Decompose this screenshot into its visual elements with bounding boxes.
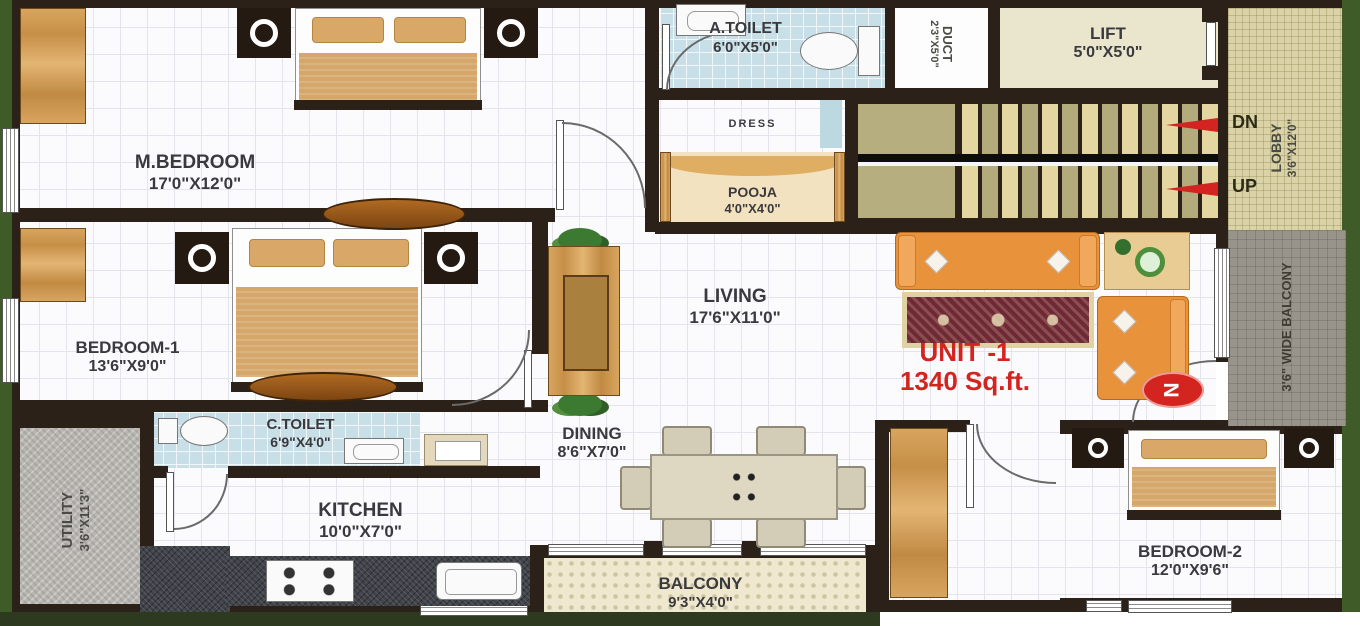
wardrobe: [20, 228, 86, 302]
kitchen-label: KITCHEN10'0"X7'0": [248, 500, 473, 542]
bed-foot: [1127, 510, 1281, 520]
dress-label: DRESS: [660, 118, 845, 131]
dining-chair: [662, 518, 712, 548]
sink: [436, 562, 522, 600]
nightstand: [1284, 428, 1334, 468]
balcony-label: BALCONY9'3"X4'0": [588, 574, 813, 612]
nightstand: [1072, 428, 1124, 468]
door-leaf: [524, 350, 532, 408]
balcony-post: [644, 541, 662, 558]
vanity-cabinet: [424, 434, 488, 466]
tv-console-inner: [563, 275, 609, 371]
plant-table: [1104, 232, 1190, 290]
stairs-down-label: DN: [1232, 112, 1258, 133]
kitchen-counter-corner: [140, 546, 230, 612]
wall: [12, 400, 420, 412]
wall: [532, 222, 548, 354]
lamp-icon: [1299, 438, 1319, 458]
pillow: [312, 17, 384, 43]
north-arrow-icon: N: [1142, 372, 1204, 408]
door-leaf: [166, 472, 174, 532]
dining-table: [650, 454, 838, 520]
window: [1086, 600, 1122, 612]
pooja-label: POOJA4'0"X4'0": [660, 184, 845, 216]
dining-chair: [756, 426, 806, 456]
stairs-up-arrow-icon: [1166, 182, 1218, 196]
door-leaf: [966, 424, 974, 508]
north-label: N: [1161, 382, 1185, 397]
lamp-icon: [437, 244, 465, 272]
wall: [880, 600, 1060, 612]
stair-landing-upper: [849, 104, 955, 156]
blanket: [299, 53, 477, 101]
dresser-top: [322, 198, 466, 230]
vanity-basin: [435, 441, 481, 461]
wall: [645, 0, 659, 232]
lamp-icon: [497, 19, 525, 47]
blanket: [1132, 467, 1276, 507]
plant-icon: [1115, 239, 1131, 255]
pillow: [333, 239, 409, 267]
nightstand: [424, 232, 478, 284]
dining-label: DINING8'6"X7'0": [487, 424, 697, 463]
stair-mid-rail-white: [845, 162, 1218, 166]
dining-chair: [620, 466, 652, 510]
wardrobe: [20, 8, 86, 124]
lamp-icon: [250, 19, 278, 47]
floor-plan: M.BEDROOM17'0"X12'0" A.TOILET6'0"X5'0" D…: [0, 0, 1360, 626]
dresser-bottom: [248, 372, 398, 402]
wall: [845, 95, 858, 232]
living-label: LIVING17'6"X11'0": [620, 286, 850, 328]
lamp-icon: [1088, 438, 1108, 458]
window: [2, 128, 19, 213]
sofa: [895, 232, 1100, 290]
lift-label: LIFT5'0"X5'0": [1018, 24, 1198, 63]
tv-console: [548, 246, 620, 396]
stair-mid-rail: [845, 154, 1218, 162]
cushion: [1046, 249, 1070, 273]
pillow: [394, 17, 466, 43]
blanket: [236, 287, 418, 377]
nightstand: [484, 8, 538, 58]
window: [1128, 600, 1232, 613]
cushion: [924, 249, 948, 273]
dining-chair: [756, 518, 806, 548]
bed: [295, 8, 481, 108]
balcony-rail: [548, 544, 644, 556]
wardrobe: [890, 428, 948, 598]
pillow: [249, 239, 325, 267]
stove: [266, 560, 354, 602]
unit-label: UNIT -11340 Sq.ft.: [845, 338, 1085, 395]
dining-chair: [836, 466, 866, 510]
utility-label: UTILITY3'6"X11'3": [16, 460, 136, 580]
c-toilet-label: C.TOILET6'9"X4'0": [198, 416, 403, 450]
cushion: [1112, 309, 1136, 333]
lift-door-leaf: [1206, 22, 1216, 66]
wall: [530, 545, 544, 615]
cushion: [1112, 360, 1136, 384]
stair-landing-lower: [849, 162, 955, 218]
lift-door-jamb: [1202, 8, 1218, 22]
wall: [12, 412, 140, 428]
nightstand: [237, 8, 291, 58]
sink-basin: [445, 569, 517, 595]
nightstand: [175, 232, 229, 284]
plant-icon: [1135, 247, 1165, 277]
stairs-down-arrow-icon: [1166, 118, 1218, 132]
wall: [12, 208, 555, 222]
stairs-up-label: UP: [1232, 176, 1257, 197]
sofa-arm: [1079, 235, 1097, 287]
bed: [232, 228, 422, 390]
pillow: [1141, 439, 1267, 459]
a-toilet-label: A.TOILET6'0"X5'0": [663, 20, 828, 57]
bed: [1128, 430, 1280, 518]
wall: [228, 466, 540, 478]
bedroom-1-label: BEDROOM-113'6"X9'0": [15, 338, 240, 377]
toilet-tank: [858, 26, 880, 76]
side-balcony-label: 3'6" WIDE BALCONY: [1212, 252, 1360, 402]
toilet-tank: [158, 418, 178, 444]
lift-door-jamb: [1202, 66, 1218, 80]
duct-label: DUCT2'3"X5'0": [891, 0, 991, 94]
bed-foot: [294, 100, 482, 110]
bedroom-2-label: BEDROOM-212'0"X9'6": [1080, 542, 1300, 581]
m-bedroom-label: M.BEDROOM17'0"X12'0": [75, 152, 315, 194]
sofa-arm: [898, 235, 916, 287]
lamp-icon: [188, 244, 216, 272]
wall: [866, 545, 880, 615]
